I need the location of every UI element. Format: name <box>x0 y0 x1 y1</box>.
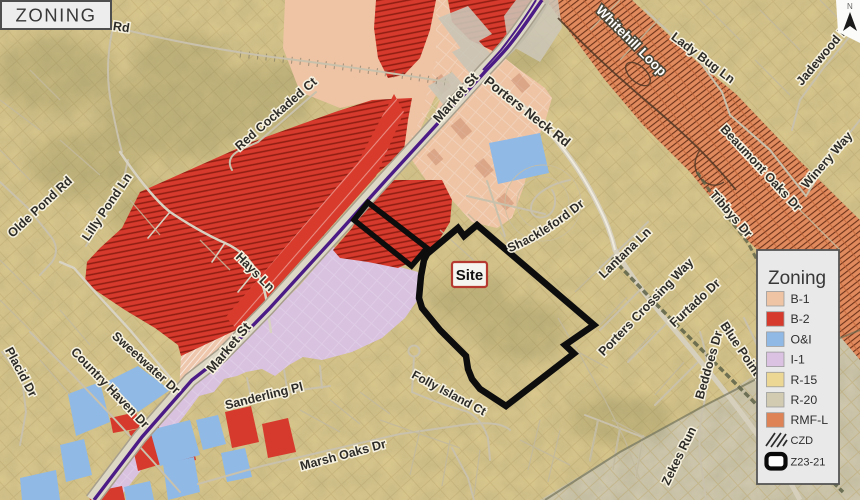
svg-text:Z23-21: Z23-21 <box>791 457 826 469</box>
svg-text:R-20: R-20 <box>791 393 818 407</box>
svg-text:Zoning: Zoning <box>768 268 826 289</box>
svg-text:B-1: B-1 <box>791 292 810 306</box>
svg-text:B-2: B-2 <box>791 312 810 326</box>
svg-text:I-1: I-1 <box>791 353 806 367</box>
svg-text:RMF-L: RMF-L <box>791 413 829 427</box>
svg-text:N: N <box>847 2 853 11</box>
svg-text:CZD: CZD <box>791 435 814 447</box>
svg-text:O&I: O&I <box>791 332 812 346</box>
svg-text:R-15: R-15 <box>791 373 818 387</box>
svg-text:Site: Site <box>456 267 484 284</box>
svg-text:Rd: Rd <box>112 19 130 35</box>
svg-text:ZONING: ZONING <box>16 5 97 26</box>
